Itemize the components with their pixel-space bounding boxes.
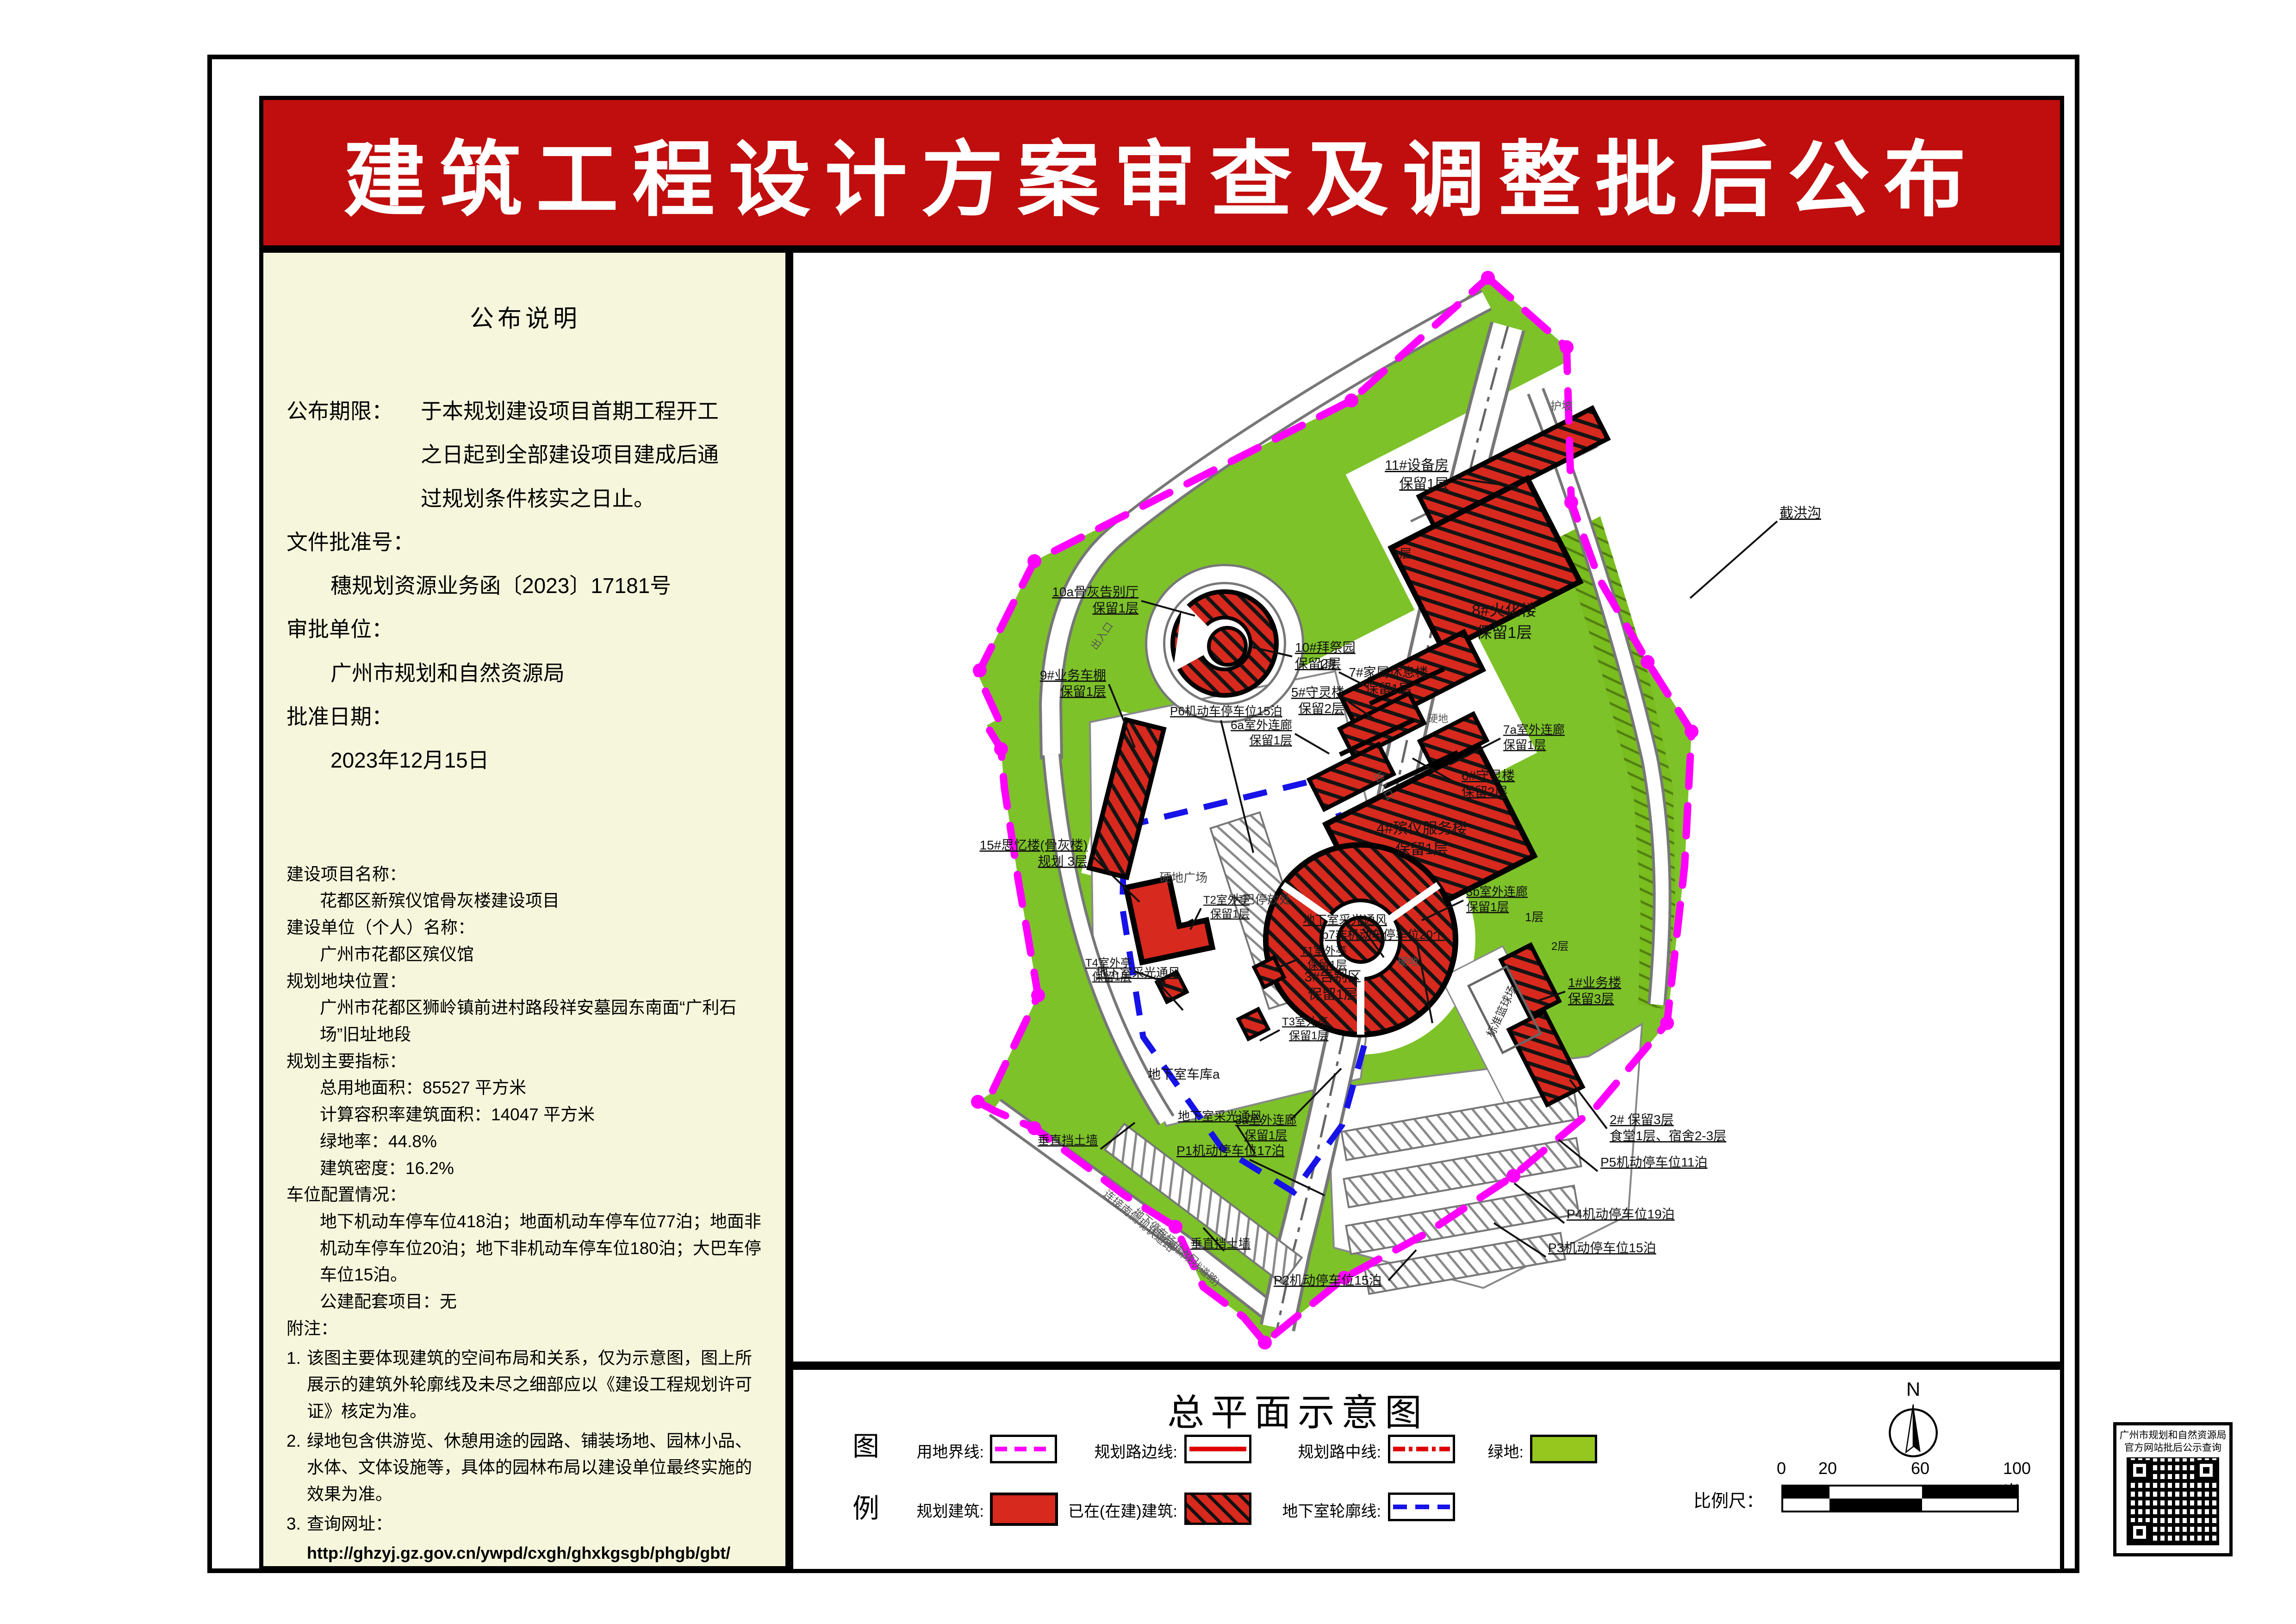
qr-caption-line2: 官方网站批后公示查询: [2116, 1442, 2229, 1454]
map-label: T1室外亭: [1300, 945, 1347, 957]
map-label: 保留1层: [1060, 684, 1106, 699]
legend-label-green: 绿地:: [1482, 1439, 1524, 1462]
map-label: 7a室外连廊: [1503, 723, 1565, 737]
legend-swatch-basement: [1388, 1493, 1455, 1521]
scale-label: 比例尺：: [1693, 1487, 1764, 1512]
notice-top-section: 公布期限： 于本规划建设项目首期工程开工之日起到全部建设项目建成后通过规划条件核…: [286, 389, 764, 782]
field-value: 公建配套项目：无: [286, 1288, 764, 1315]
building-10a: [1173, 592, 1276, 695]
site-plan-svg: 11#设备房保留1层护坡截洪沟8#火化楼保留1层1层1层7#家属休息楼保留1层5…: [793, 253, 2060, 1362]
map-label: 保留1层: [1308, 987, 1358, 1002]
map-label: 9#业务车棚: [1040, 668, 1106, 682]
map-label: 地下室采光通风: [1178, 1109, 1262, 1123]
map-label: 地下室采光通风: [1303, 913, 1387, 927]
field-value: 地下机动车停车位418泊；地面机动车停车位77泊；地面非机动车停车位20泊；地下…: [286, 1208, 764, 1288]
map-label: 2# 保留3层: [1610, 1112, 1674, 1127]
field-value: 广州市花都区殡仪馆: [286, 941, 764, 968]
map-label: 15#思忆楼(骨灰楼): [980, 838, 1088, 852]
map-label: 保留1层: [1250, 733, 1292, 747]
field-label: 批准日期：: [286, 695, 764, 738]
legend-label-road-center: 规划路中线:: [1275, 1439, 1381, 1462]
map-label: 硬地: [1428, 713, 1448, 725]
map-label: 硬地广场: [1159, 871, 1207, 885]
map-label: 保留1层: [1092, 601, 1139, 615]
legend-swatch-planned: [990, 1493, 1058, 1526]
query-url[interactable]: http://ghzyj.gz.gov.cn/ywpd/cxgh/ghxkgsg…: [307, 1540, 764, 1566]
note-item: 3. 查询网址： http://ghzyj.gz.gov.cn/ywpd/cxg…: [286, 1511, 764, 1566]
indicator-item: 总用地面积：85527 平方米: [286, 1074, 764, 1101]
map-label: 保留1层: [1307, 959, 1347, 971]
indicator-item: 计算容积率建筑面积：14047 平方米: [286, 1101, 764, 1128]
map-label: 10#拜祭园: [1295, 640, 1356, 655]
field-label: 建设单位（个人）名称：: [286, 914, 764, 941]
map-label: T2室外亭: [1203, 894, 1250, 906]
legend-label-planned: 规划建筑:: [896, 1499, 984, 1521]
notice-heading: 公布说明: [286, 299, 764, 334]
building-10: [1209, 628, 1246, 665]
map-label: 5#守灵楼: [1291, 685, 1344, 700]
indicator-item: 绿地率：44.8%: [286, 1128, 764, 1155]
map-label: 11#设备房: [1385, 458, 1449, 473]
map-label: 7#家属休息楼: [1349, 665, 1428, 680]
map-label: 保留1层: [1399, 476, 1449, 492]
map-label: 地下室车库a: [1148, 1067, 1220, 1081]
map-label: 4#殡仪服务楼: [1376, 820, 1467, 837]
map-label: 保留1层: [1466, 900, 1509, 914]
map-title: 总平面示意图: [1089, 1383, 1506, 1437]
map-label: 保留1层: [1395, 841, 1448, 857]
map-label: 护坡: [1550, 400, 1573, 412]
field-label: 附注：: [286, 1315, 764, 1342]
map-label: 食堂1层、宿舍2-3层: [1610, 1129, 1726, 1143]
map-label: T3室外亭: [1282, 1016, 1328, 1028]
map-label: 保留1层: [1476, 624, 1532, 642]
map-label: P5机动停车位11泊: [1600, 1155, 1707, 1169]
map-label: 1层: [1525, 910, 1543, 924]
notice-sheet: 建筑工程设计方案审查及调整批后公布 公布说明 公布期限： 于本规划建设项目首期工…: [0, 0, 2296, 1624]
legend-swatch-green: [1530, 1435, 1597, 1463]
field-label: 建设项目名称：: [286, 861, 764, 888]
map-label: p7非机动车停车位20个: [1322, 928, 1445, 942]
legend-box: 总平面示意图 图 例 用地界线: 规划路边线: 规划路中线: 绿地: 规划建筑:…: [789, 1366, 2064, 1573]
field-label: 文件批准号：: [286, 520, 764, 564]
legend-label-road-edge: 规划路边线:: [1071, 1439, 1177, 1462]
map-label: 保留1层: [1365, 681, 1412, 696]
map-label: 地下室采光通风: [1096, 966, 1180, 980]
legend-col-label: 图: [852, 1424, 879, 1463]
map-label: 垂直挡土墙: [1038, 1133, 1098, 1147]
legend-swatch-road-edge: [1184, 1435, 1251, 1463]
map-label: 6a室外连廊: [1231, 718, 1292, 732]
map-label: 8#火化楼: [1472, 602, 1537, 619]
map-label: 3b室外连廊: [1466, 885, 1528, 899]
map-label: 硬地: [1398, 956, 1418, 968]
map-label: P1机动停车位17泊: [1176, 1143, 1284, 1158]
map-label: P4机动停车位19泊: [1567, 1207, 1674, 1221]
map-label: 1层: [1393, 547, 1412, 561]
map-label: 2层: [1551, 940, 1568, 953]
legend-swatch-boundary: [990, 1435, 1057, 1463]
note-item: 2. 绿地包含供游览、休憩用途的园路、铺装场地、园林小品、水体、文体设施等，具体…: [286, 1428, 764, 1508]
north-label: N: [1881, 1378, 1946, 1400]
map-label: 保留1层: [1244, 1128, 1287, 1142]
field-label: 公布期限：: [286, 389, 421, 520]
field-label: 规划地块位置：: [286, 968, 764, 995]
title-banner: 建筑工程设计方案审查及调整批后公布: [259, 96, 2064, 250]
note-item: 4. 其他仍按穗国土规划批〔2017〕239号文执行。本文及附图与穗国土规划批〔…: [286, 1569, 764, 1570]
legend-col-label: 例: [852, 1487, 879, 1525]
qr-caption-line1: 广州市规划和自然资源局: [2116, 1429, 2229, 1442]
map-label: 保留1层: [1503, 738, 1546, 752]
field-label: 规划主要指标：: [286, 1048, 764, 1075]
map-label: 保留3层: [1568, 992, 1614, 1006]
map-label: 保留1层: [1289, 1030, 1328, 1042]
scale-bar: [1781, 1485, 2019, 1512]
map-label: 垂直挡土墙: [1190, 1237, 1251, 1250]
field-label: 车位配置情况：: [286, 1181, 764, 1208]
legend-swatch-road-center: [1388, 1435, 1455, 1463]
map-label: P2机动停车位15泊: [1274, 1273, 1381, 1287]
legend-label-existing: 已在(在建)建筑:: [1057, 1499, 1177, 1521]
indicator-item: 建筑密度：16.2%: [286, 1155, 764, 1182]
map-label: 截洪沟: [1780, 506, 1821, 521]
field-value: 广州市花都区狮岭镇前进村路段祥安墓园东南面“广利石场”旧址地段: [286, 994, 764, 1048]
site-plan-map: 11#设备房保留1层护坡截洪沟8#火化楼保留1层1层1层7#家属休息楼保留1层5…: [789, 249, 2064, 1366]
field-value: 2023年12月15日: [286, 738, 764, 782]
map-label: 6#守灵楼: [1462, 768, 1515, 783]
field-label: 审批单位：: [286, 607, 764, 651]
notice-detail-section: 建设项目名称： 花都区新殡仪馆骨灰楼建设项目 建设单位（个人）名称： 广州市花都…: [286, 861, 764, 1570]
map-label: 保留2层: [1298, 701, 1344, 716]
map-label: P3机动停车位15泊: [1548, 1241, 1656, 1255]
map-label: 1#业务楼: [1568, 975, 1621, 990]
legend-label-basement: 地下室轮廓线:: [1270, 1499, 1381, 1521]
map-label: 规划 3层: [1038, 854, 1088, 868]
qr-code: [2128, 1458, 2218, 1544]
map-label: 3#告别区: [1304, 969, 1361, 985]
field-value: 广州市规划和自然资源局: [286, 651, 764, 695]
note-item: 1. 该图主要体现建筑的空间布局和关系，仅为示意图，图上所展示的建筑外轮廓线及未…: [286, 1345, 764, 1425]
north-arrow: N: [1881, 1378, 1946, 1468]
map-label: P6机动车停车位15泊: [1170, 704, 1282, 718]
map-label: 保留2层: [1462, 785, 1508, 799]
map-label: 保留1层: [1210, 908, 1250, 920]
field-value: 于本规划建设项目首期工程开工之日起到全部建设项目建成后通过规划条件核实之日止。: [421, 389, 728, 520]
map-label: 10a骨灰告别厅: [1052, 585, 1139, 599]
legend-swatch-existing: [1184, 1493, 1251, 1525]
map-label: 保留2层: [1295, 656, 1341, 671]
field-value: 花都区新殡仪馆骨灰楼建设项目: [286, 887, 764, 914]
legend-label-boundary: 用地界线:: [896, 1439, 984, 1462]
field-value: 穗规划资源业务函〔2023〕17181号: [286, 564, 764, 607]
compass-icon: [1883, 1400, 1943, 1465]
qr-panel: 广州市规划和自然资源局 官方网站批后公示查询: [2113, 1422, 2233, 1556]
notice-panel: 公布说明 公布期限： 于本规划建设项目首期工程开工之日起到全部建设项目建成后通过…: [259, 249, 790, 1570]
page-title: 建筑工程设计方案审查及调整批后公布: [343, 113, 1980, 232]
